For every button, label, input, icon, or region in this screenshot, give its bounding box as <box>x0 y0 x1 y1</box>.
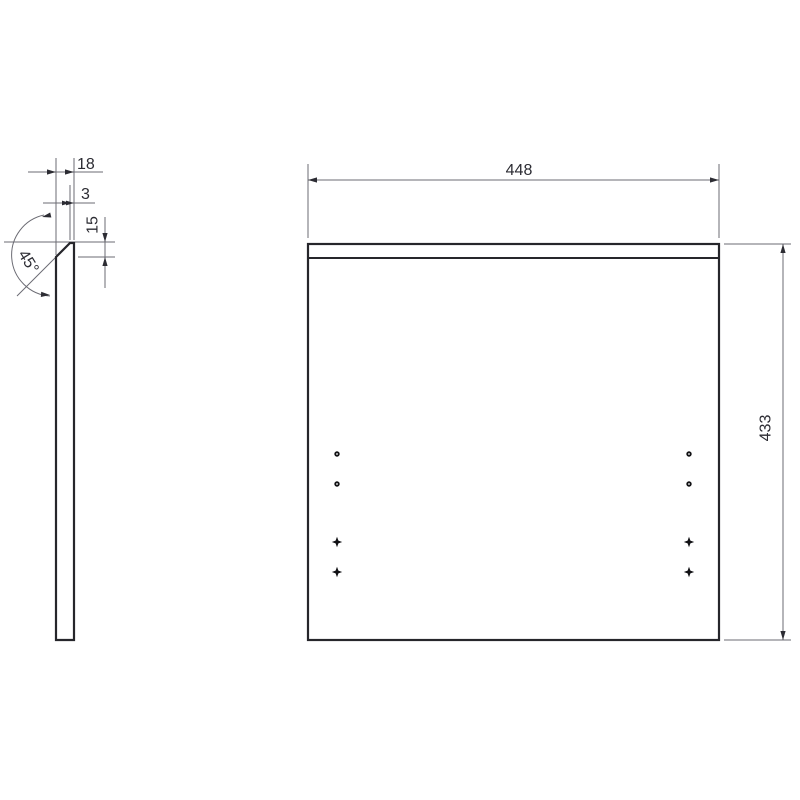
arrowhead <box>65 169 74 174</box>
dimension-448: 448 <box>308 162 719 183</box>
hole-marker-dot <box>334 451 339 456</box>
technical-drawing: 18 3 15 45° <box>0 0 800 800</box>
dimension-433: 433 <box>758 244 786 640</box>
arrowhead <box>780 244 785 253</box>
dimension-45deg: 45° <box>12 212 52 297</box>
dimension-3: 3 <box>43 186 95 205</box>
arrowhead <box>710 177 719 182</box>
arrowhead <box>47 169 56 174</box>
dimension-text-448: 448 <box>506 162 533 179</box>
dimension-text-45deg: 45° <box>14 247 41 277</box>
hole-marker-dot <box>686 451 691 456</box>
arrowhead <box>102 257 107 266</box>
front-panel-outline <box>308 244 719 640</box>
dimension-text-18: 18 <box>77 156 95 173</box>
dimension-text-433: 433 <box>758 415 775 442</box>
side-view: 18 3 15 45° <box>4 156 115 640</box>
arrowhead <box>780 631 785 640</box>
dimension-text-15: 15 <box>85 216 102 234</box>
arrowhead <box>41 292 50 298</box>
side-panel-outline <box>56 243 74 640</box>
drawing-canvas: 18 3 15 45° <box>0 0 800 800</box>
dimension-15: 15 <box>85 216 108 288</box>
dimension-text-3: 3 <box>81 186 90 203</box>
arrowhead <box>102 233 107 242</box>
hole-marker-dot <box>334 481 339 486</box>
front-view: 448 433 <box>308 162 791 640</box>
arrowhead <box>308 177 317 182</box>
hole-marker-dot <box>686 481 691 486</box>
arrowhead <box>41 212 51 219</box>
dimension-18: 18 <box>28 156 103 175</box>
